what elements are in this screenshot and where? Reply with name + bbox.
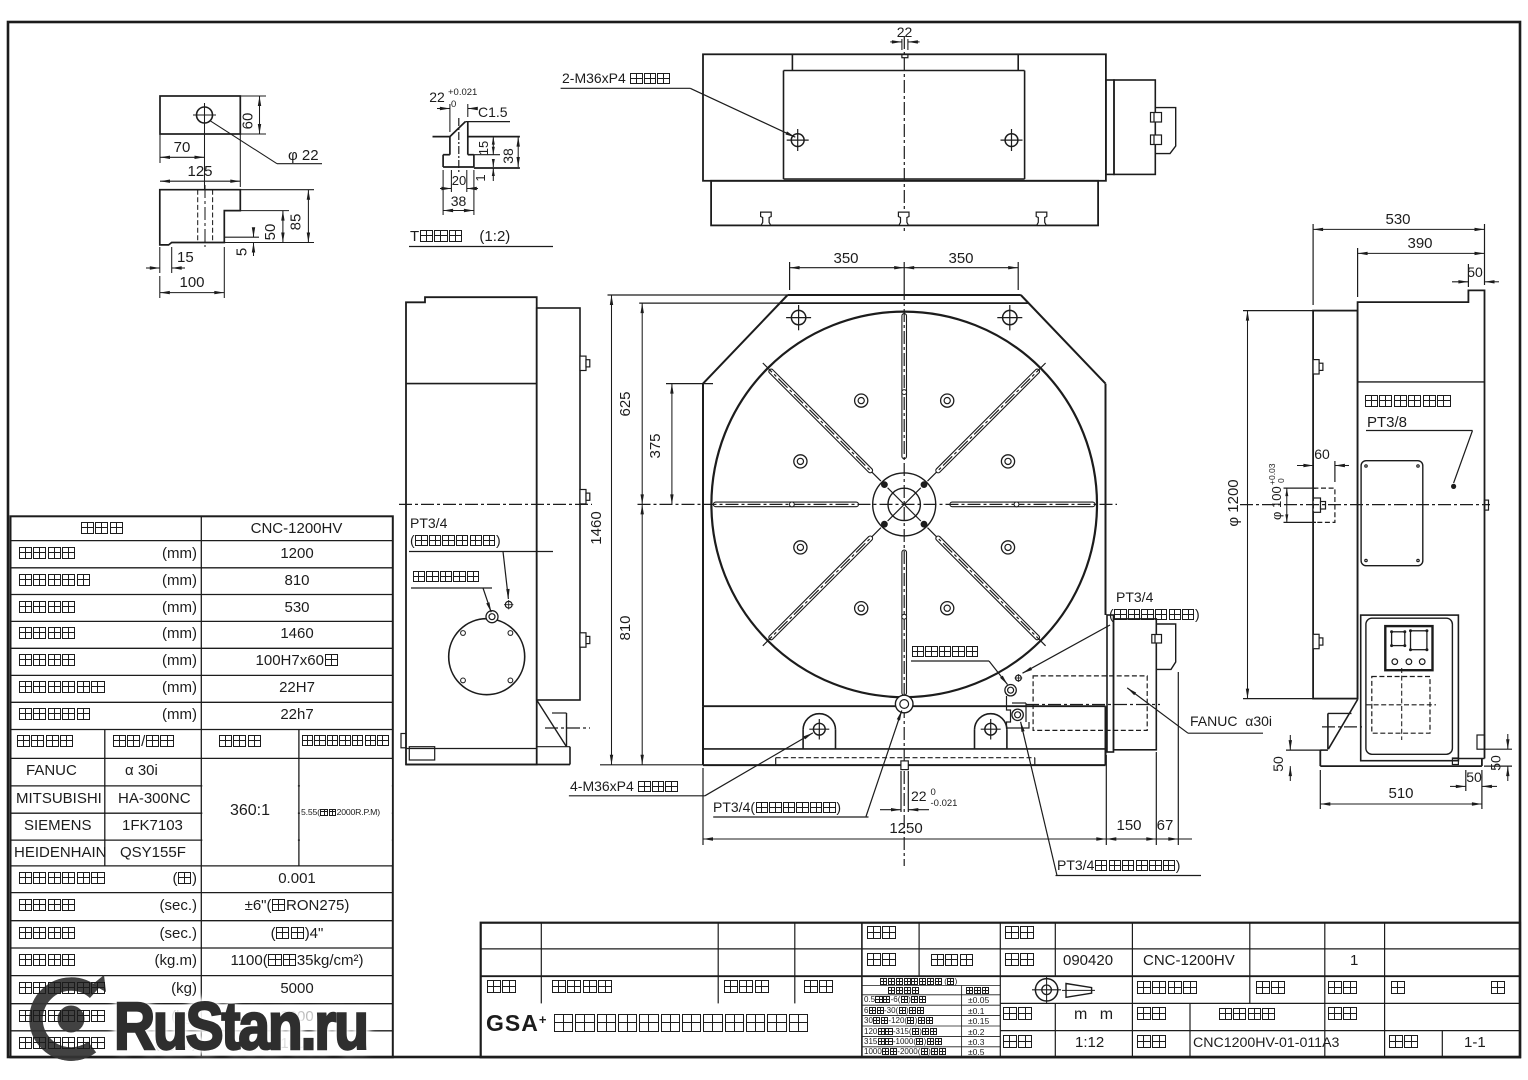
svg-text:60: 60 [240,113,257,130]
svg-text:-0.021: -0.021 [931,798,958,809]
svg-text:50: 50 [1488,755,1504,771]
svg-text:38: 38 [500,148,516,164]
svg-text:15: 15 [476,141,491,155]
svg-text:375: 375 [647,433,664,458]
svg-text:0: 0 [1276,478,1286,483]
svg-text:50: 50 [1466,769,1482,785]
svg-text:5: 5 [234,248,251,256]
svg-text:22: 22 [429,89,445,105]
svg-text:530: 530 [1385,211,1410,228]
svg-text:350: 350 [833,250,858,267]
svg-text:15: 15 [177,249,194,266]
svg-text:50: 50 [262,224,279,241]
svg-text:510: 510 [1388,785,1413,802]
svg-text:φ 100: φ 100 [1269,486,1284,520]
svg-text:100: 100 [179,274,204,291]
svg-text:625: 625 [617,391,634,416]
svg-text:φ 22: φ 22 [288,147,319,164]
svg-text:350: 350 [948,250,973,267]
svg-text:22: 22 [911,788,927,804]
svg-text:22: 22 [897,24,913,40]
svg-text:50: 50 [1270,756,1286,772]
svg-text:+0.021: +0.021 [448,87,477,98]
svg-text:20: 20 [452,173,466,188]
svg-text:0: 0 [451,99,456,110]
svg-text:1: 1 [473,174,488,181]
svg-text:0: 0 [931,787,936,798]
svg-text:390: 390 [1407,235,1432,252]
svg-text:70: 70 [174,139,191,156]
svg-text:150: 150 [1116,817,1141,834]
svg-text:810: 810 [617,615,634,640]
svg-text:85: 85 [288,214,305,231]
svg-text:67: 67 [1157,817,1174,834]
svg-text:50: 50 [1467,264,1483,280]
svg-text:1250: 1250 [889,820,922,837]
svg-text:38: 38 [451,193,467,209]
svg-text:C1.5: C1.5 [478,104,508,120]
svg-text:1460: 1460 [588,511,605,544]
svg-text:φ 1200: φ 1200 [1225,479,1242,526]
svg-text:60: 60 [1314,446,1330,462]
svg-text:125: 125 [187,163,212,180]
